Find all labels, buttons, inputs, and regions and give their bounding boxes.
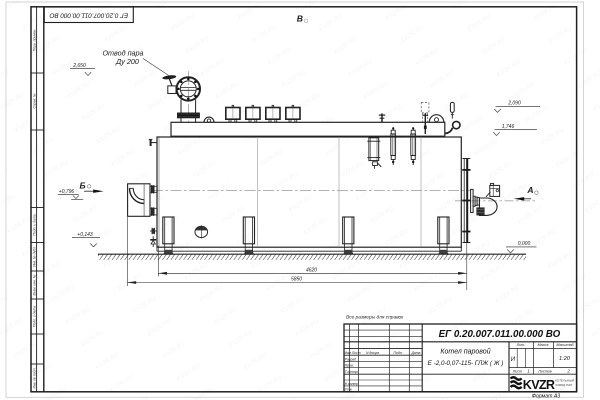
svg-text:1:20: 1:20 <box>559 356 571 362</box>
svg-text:Формат А3: Формат А3 <box>532 394 560 400</box>
svg-text:Утв.: Утв. <box>345 388 353 392</box>
svg-text:Масштаб: Масштаб <box>556 343 574 347</box>
svg-text:Изм Лист: Изм Лист <box>345 351 361 355</box>
svg-text:Лист: Лист <box>512 369 523 373</box>
svg-text:ЕГ 0.20.007.011.00.000 ВО: ЕГ 0.20.007.011.00.000 ВО <box>439 329 561 340</box>
svg-text:2,650: 2,650 <box>72 63 86 69</box>
svg-text:Т.контр.: Т.контр. <box>345 370 359 374</box>
svg-text:KVZR: KVZR <box>523 378 555 392</box>
svg-text:А: А <box>526 185 533 195</box>
svg-text:Дата: Дата <box>411 351 421 355</box>
svg-text:Котел паровой: Котел паровой <box>440 348 490 356</box>
svg-text:Взам. инв. №: Взам. инв. № <box>33 274 37 295</box>
svg-text:2,090: 2,090 <box>507 101 521 107</box>
svg-text:Е -2,0-0,07-115- ГЛЖ ( Ж ): Е -2,0-0,07-115- ГЛЖ ( Ж ) <box>428 360 504 367</box>
svg-text:Масса: Масса <box>538 343 549 347</box>
svg-text:5850: 5850 <box>291 277 302 283</box>
svg-text:Перв. примен.: Перв. примен. <box>33 29 37 52</box>
svg-text:Инв. № подл.: Инв. № подл. <box>33 367 37 388</box>
svg-text:Листов: Листов <box>537 369 552 373</box>
svg-text:Б: Б <box>79 181 85 191</box>
svg-text:Подп.: Подп. <box>394 351 403 355</box>
svg-text:4620: 4620 <box>306 267 317 273</box>
svg-text:0,000: 0,000 <box>518 241 531 247</box>
svg-text:+0,143: +0,143 <box>77 232 93 238</box>
svg-text:Подп. и дата: Подп. и дата <box>33 214 37 235</box>
svg-text:И: И <box>511 357 516 363</box>
svg-text:Пров.: Пров. <box>345 364 354 368</box>
svg-text:N докум.: N докум. <box>366 351 380 355</box>
svg-text:В: В <box>297 14 303 24</box>
svg-text:КОТЕЛЬНЫЙ: КОТЕЛЬНЫЙ <box>555 379 575 383</box>
svg-text:Все размеры для справок: Все размеры для справок <box>346 315 404 321</box>
svg-text:Н.контр.: Н.контр. <box>345 382 359 386</box>
svg-text:+0,796: +0,796 <box>59 189 75 195</box>
svg-text:Разраб.: Разраб. <box>345 357 357 361</box>
svg-text:Инв. № дубл.: Инв. № дубл. <box>33 246 37 267</box>
svg-text:ЕГ 0.20.007.011.00.000 ВО: ЕГ 0.20.007.011.00.000 ВО <box>50 11 129 18</box>
svg-text:Лит.: Лит. <box>516 343 526 347</box>
svg-text:1: 1 <box>527 368 529 373</box>
svg-text:1,746: 1,746 <box>502 124 515 130</box>
svg-text:Справ. №: Справ. № <box>33 93 37 109</box>
svg-text:Ду 200: Ду 200 <box>115 57 139 66</box>
svg-text:ЗАВОД РЭП: ЗАВОД РЭП <box>555 383 573 387</box>
svg-text:Подп. и дата: Подп. и дата <box>33 306 37 327</box>
